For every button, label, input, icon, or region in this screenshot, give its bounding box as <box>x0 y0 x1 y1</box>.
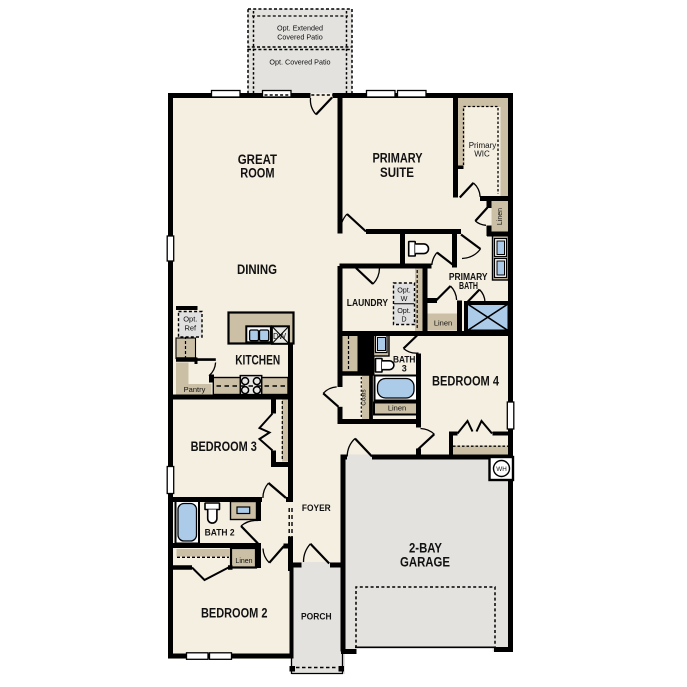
svg-text:LAUNDRY: LAUNDRY <box>347 297 388 309</box>
svg-text:PRIMARY: PRIMARY <box>373 150 423 165</box>
svg-text:WH: WH <box>496 466 507 473</box>
svg-text:Pantry: Pantry <box>184 385 206 394</box>
svg-text:Opt. Extended: Opt. Extended <box>277 24 323 33</box>
svg-text:Linen: Linen <box>235 558 252 565</box>
svg-text:SUITE: SUITE <box>380 165 414 180</box>
svg-text:DW: DW <box>273 332 287 341</box>
svg-text:Opt.: Opt. <box>183 315 197 324</box>
svg-text:WIC: WIC <box>474 150 490 159</box>
svg-text:BEDROOM 3: BEDROOM 3 <box>191 439 258 454</box>
svg-text:BATH: BATH <box>459 280 478 292</box>
svg-text:BATH 2: BATH 2 <box>205 527 235 538</box>
svg-text:W: W <box>401 294 408 303</box>
svg-text:Opt. Covered Patio: Opt. Covered Patio <box>269 58 330 67</box>
svg-text:Linen: Linen <box>434 319 452 328</box>
svg-text:Linen: Linen <box>497 208 504 225</box>
svg-text:D: D <box>401 315 406 324</box>
svg-text:Covered Patio: Covered Patio <box>277 33 323 42</box>
svg-text:PORCH: PORCH <box>301 612 332 623</box>
svg-text:Ref: Ref <box>184 324 197 333</box>
svg-text:Coats: Coats <box>361 389 368 405</box>
svg-text:Linen: Linen <box>388 404 406 413</box>
svg-text:KITCHEN: KITCHEN <box>235 353 280 368</box>
svg-text:BEDROOM 2: BEDROOM 2 <box>201 606 268 621</box>
svg-text:FOYER: FOYER <box>302 503 331 514</box>
svg-text:ROOM: ROOM <box>240 166 274 181</box>
svg-text:3: 3 <box>402 364 407 374</box>
svg-text:DINING: DINING <box>237 262 277 277</box>
svg-text:GARAGE: GARAGE <box>400 555 450 570</box>
svg-text:2-BAY: 2-BAY <box>409 541 442 556</box>
svg-text:BEDROOM 4: BEDROOM 4 <box>432 374 499 389</box>
